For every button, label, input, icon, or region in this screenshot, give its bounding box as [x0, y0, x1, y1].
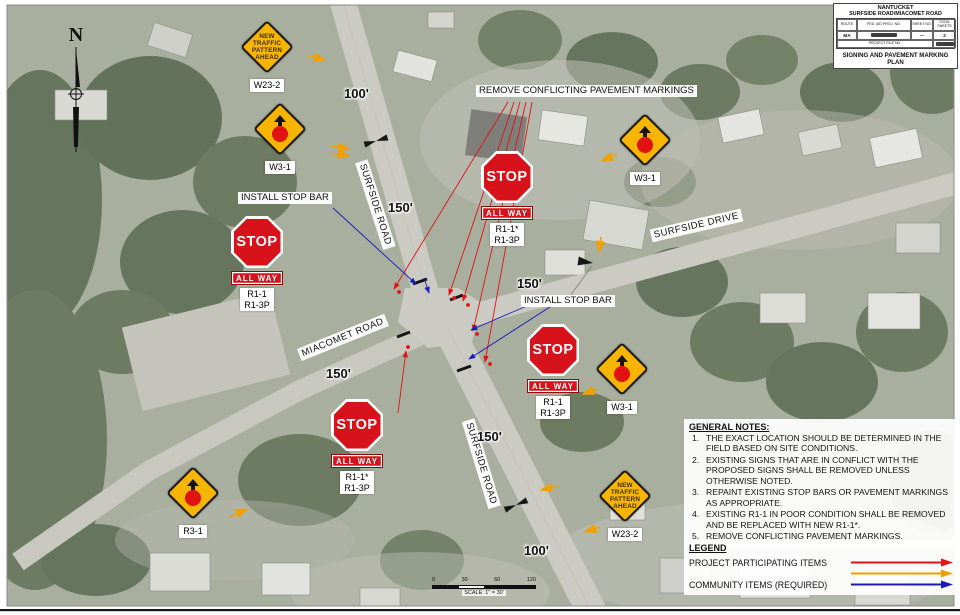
stop-sign-icon: STOP	[231, 216, 283, 268]
sign-w3-1-right-top: W3-1	[600, 111, 690, 185]
stop-sign-icon: STOP	[527, 324, 579, 376]
sign-w23-2-top: NEWTRAFFIC PATTERNAHEAD W23-2	[222, 18, 312, 92]
sign-label: R1-1*R1-3P	[340, 471, 374, 494]
sign-label: R1-1R1-3P	[536, 396, 570, 419]
callout-install-stop-bar-2: INSTALL STOP BAR	[521, 295, 615, 307]
secondary-arrow-icon	[851, 569, 953, 578]
project-file-value	[933, 40, 956, 48]
sign-label: W3-1	[265, 161, 295, 174]
distance-100-top: 100'	[344, 86, 369, 101]
municipality: NANTUCKET	[834, 4, 957, 11]
legend-row-project: PROJECT PARTICIPATING ITEMS	[689, 557, 953, 568]
stop-sign-icon: STOP	[331, 399, 383, 451]
sign-label: R3-1	[179, 525, 207, 538]
stop-ahead-icon	[178, 478, 208, 508]
distance-150-mid: 150'	[517, 276, 542, 291]
distance-150-top: 150'	[388, 200, 413, 215]
sign-stop-center-top: STOP ALL WAY R1-1*R1-3P	[462, 151, 552, 246]
sheet-no-header: SHEET NO.	[911, 19, 933, 31]
distance-150-low: 150'	[477, 429, 502, 444]
fed-aid-header: FED. AID PROJ. NO.	[857, 19, 911, 31]
total-sheets-header: TOTAL SHEETS	[933, 19, 956, 31]
stop-ahead-icon	[630, 125, 660, 155]
stop-sign-icon: STOP	[481, 151, 533, 203]
scale-bar: 030 60120 SCALE: 1" = 30'	[424, 578, 544, 596]
all-way-plaque: ALL WAY	[231, 271, 283, 285]
notes-title: GENERAL NOTES:	[689, 422, 953, 432]
sign-stop-bottom: STOP ALL WAY R1-1*R1-3P	[312, 399, 402, 494]
sign-label: R1-1*R1-3P	[490, 223, 524, 246]
note-item: 3.REPAINT EXISTING STOP BARS OR PAVEMENT…	[689, 487, 953, 508]
sign-label: W23-2	[608, 528, 643, 541]
scale-label: SCALE: 1" = 30'	[462, 590, 506, 596]
project-file-header: PROJECT FILE NO.	[837, 40, 933, 48]
callout-remove-markings: REMOVE CONFLICTING PAVEMENT MARKINGS	[476, 85, 697, 97]
plan-title: SIGNING AND PAVEMENT MARKING PLAN	[834, 50, 957, 68]
sign-label: W3-1	[607, 401, 637, 414]
north-arrow: N	[56, 24, 96, 152]
route-header: ROUTE	[837, 19, 857, 31]
stop-ahead-icon	[607, 354, 637, 384]
note-item: 4.EXISTING R1-1 IN POOR CONDITION SHALL …	[689, 509, 953, 530]
plan-sheet: N NANTUCKET SURFSIDE ROAD/MIACOMET ROAD …	[0, 0, 960, 615]
north-label: N	[69, 24, 83, 47]
all-way-plaque: ALL WAY	[481, 206, 533, 220]
distance-100-bottom: 100'	[524, 543, 549, 558]
sign-w3-1-top: W3-1	[235, 100, 325, 174]
title-block: NANTUCKET SURFSIDE ROAD/MIACOMET ROAD RO…	[833, 3, 958, 69]
callout-install-stop-bar-1: INSTALL STOP BAR	[238, 192, 332, 204]
total-sheets-value: 2	[933, 31, 956, 40]
new-traffic-pattern-icon: NEWTRAFFIC PATTERNAHEAD	[610, 482, 640, 510]
route-value: MA	[837, 31, 857, 40]
legend-title: LEGEND	[689, 543, 953, 553]
scale-bar-graphic	[432, 585, 536, 589]
all-way-plaque: ALL WAY	[527, 379, 579, 393]
legend-project-label: PROJECT PARTICIPATING ITEMS	[689, 558, 827, 568]
sign-label: W3-1	[630, 172, 660, 185]
sheet-no-value: —	[911, 31, 933, 40]
north-arrow-icon	[66, 47, 86, 152]
note-item: 2.EXISTING SIGNS THAT ARE IN CONFLICT WI…	[689, 455, 953, 486]
sign-stop-mid-right: STOP ALL WAY R1-1R1-3P	[508, 324, 598, 419]
scale-ticks: 030 60120	[432, 578, 536, 584]
legend-community-label: COMMUNITY ITEMS (REQUIRED)	[689, 580, 827, 590]
sign-label: W23-2	[250, 79, 285, 92]
general-notes-panel: GENERAL NOTES: 1.THE EXACT LOCATION SHOU…	[684, 419, 958, 547]
sign-w23-2-bottom: NEWTRAFFIC PATTERNAHEAD W23-2	[580, 467, 670, 541]
note-item: 1.THE EXACT LOCATION SHOULD BE DETERMINE…	[689, 433, 953, 454]
stop-ahead-icon	[265, 114, 295, 144]
fed-aid-value	[857, 31, 911, 40]
project-road: SURFSIDE ROAD/MIACOMET ROAD	[834, 11, 957, 17]
sign-label: R1-1R1-3P	[240, 288, 274, 311]
legend-row-community: COMMUNITY ITEMS (REQUIRED)	[689, 579, 953, 590]
community-arrow-icon	[851, 580, 953, 589]
sign-stop-left: STOP ALL WAY R1-1R1-3P	[212, 216, 302, 311]
distance-150-left: 150'	[326, 366, 351, 381]
legend-row-secondary	[689, 568, 953, 579]
legend-panel: LEGEND PROJECT PARTICIPATING ITEMS COMMU…	[684, 540, 958, 595]
project-arrow-icon	[851, 558, 953, 567]
new-traffic-pattern-icon: NEWTRAFFIC PATTERNAHEAD	[252, 33, 282, 61]
all-way-plaque: ALL WAY	[331, 454, 383, 468]
sign-r3-1: R3-1	[148, 464, 238, 538]
title-block-table: ROUTE FED. AID PROJ. NO. SHEET NO. TOTAL…	[836, 18, 955, 49]
